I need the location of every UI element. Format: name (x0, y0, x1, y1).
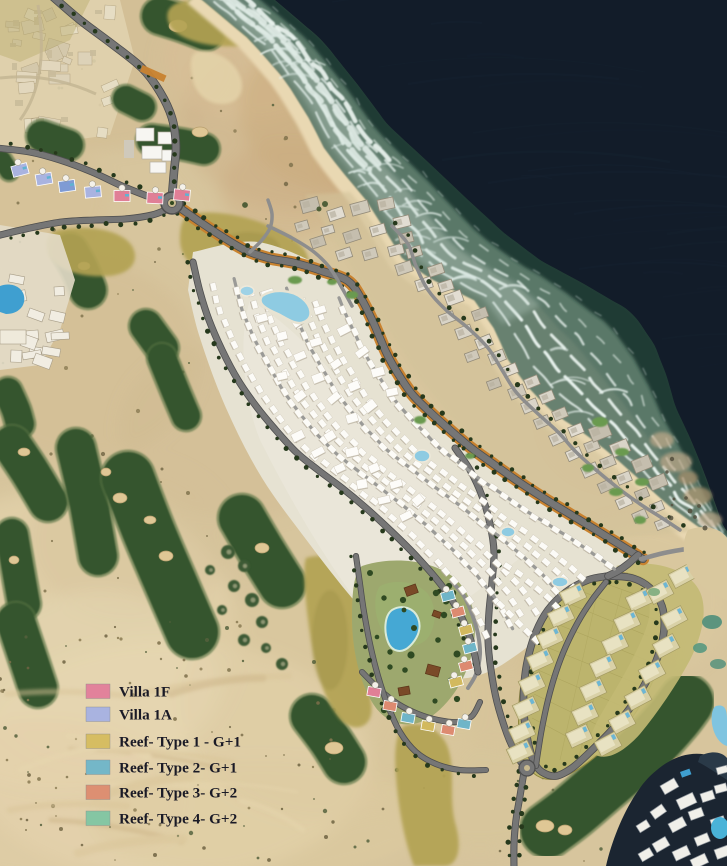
svg-text:Reef- Type 1 - G+1: Reef- Type 1 - G+1 (119, 734, 241, 751)
svg-text:Reef- Type 4- G+2: Reef- Type 4- G+2 (119, 811, 237, 828)
svg-text:Reef- Type 3- G+2: Reef- Type 3- G+2 (119, 785, 237, 802)
svg-text:Villa 1A: Villa 1A (119, 707, 172, 724)
svg-text:Reef- Type 2- G+1: Reef- Type 2- G+1 (119, 760, 237, 777)
svg-text:Villa 1F: Villa 1F (119, 684, 170, 701)
